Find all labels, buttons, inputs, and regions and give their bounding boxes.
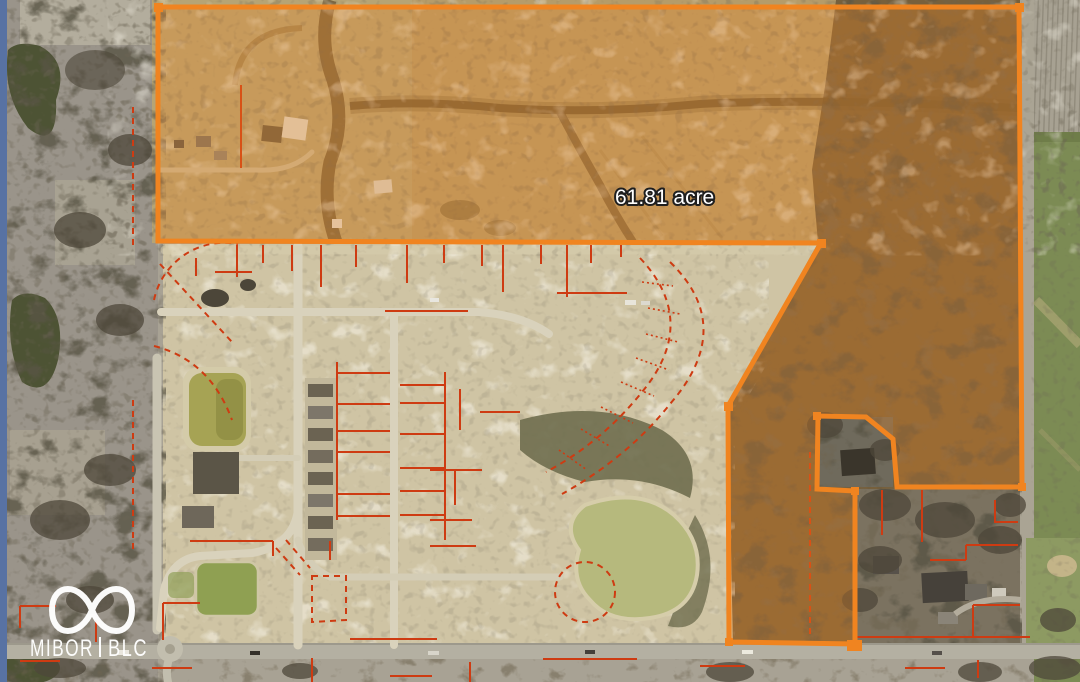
green-basin: [196, 562, 258, 616]
construction-homes-row: [305, 378, 337, 560]
watermark-brand-secondary: BLC: [108, 635, 148, 662]
area-label: 61.81 acre: [615, 186, 714, 209]
edge-strip: [0, 0, 7, 682]
watermark-brand-primary: MIBOR: [30, 635, 94, 662]
vehicle: [625, 300, 636, 305]
aerial-parcel-photo: 61.81 acre MIBOR BLC: [0, 0, 1080, 682]
clubhouse-building: [193, 452, 239, 494]
plowed-field: [1034, 0, 1080, 140]
